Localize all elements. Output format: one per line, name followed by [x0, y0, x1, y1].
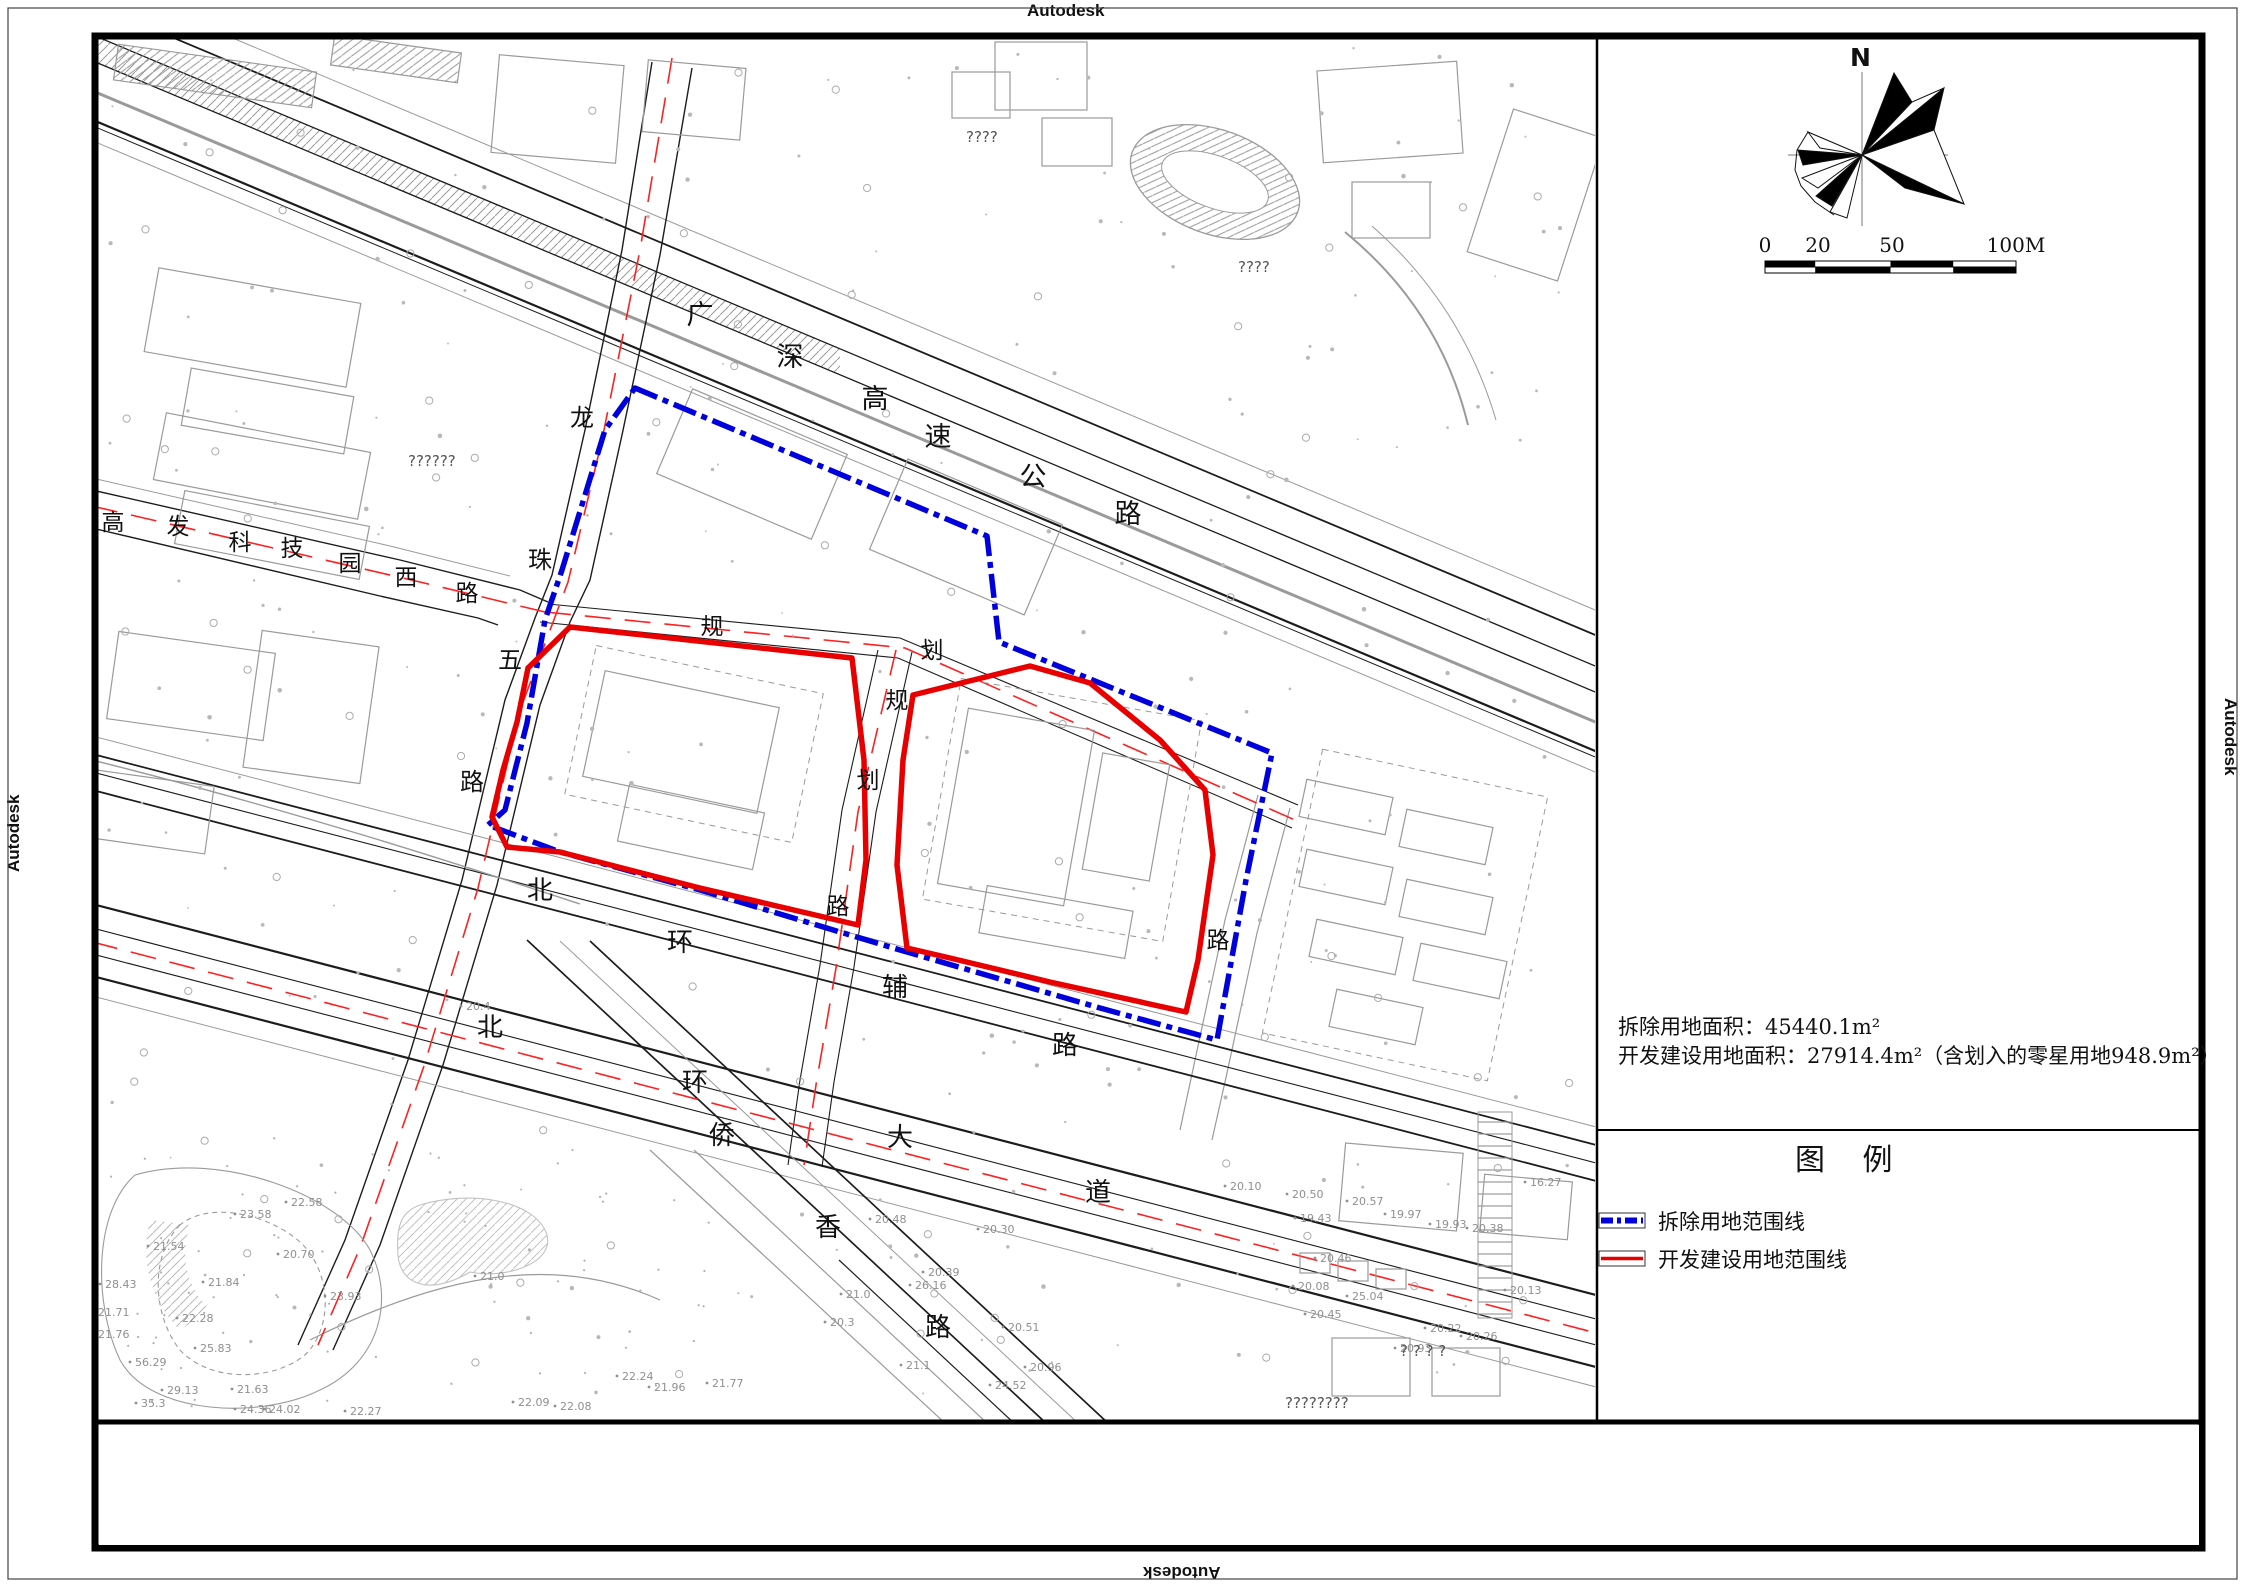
map-dot	[485, 1225, 487, 1227]
tree-icon	[680, 230, 687, 237]
map-dot	[388, 1169, 390, 1171]
map-dot	[253, 579, 255, 581]
spot-elevation-value: 26.16	[915, 1279, 947, 1292]
map-dot	[1494, 275, 1496, 277]
spot-elevation-value: 20.46	[1320, 1252, 1352, 1265]
map-dot	[890, 1256, 893, 1259]
map-dot	[1445, 671, 1449, 675]
map-dot	[292, 1305, 296, 1309]
map-dot	[183, 142, 187, 146]
map-dot	[273, 1137, 275, 1139]
scale-tick-0: 0	[1759, 233, 1772, 257]
tree-icon	[735, 69, 742, 76]
map-dot	[800, 1212, 804, 1216]
map-dot	[1146, 929, 1150, 933]
spot-elevation-dot	[234, 1213, 237, 1216]
placeholder-glyph-text: ????	[1238, 258, 1270, 276]
road-label-char: 路	[460, 768, 484, 796]
tree-icon	[123, 415, 130, 422]
spot-elevation-dot	[285, 1201, 288, 1204]
spot-elevation-dot	[231, 1388, 234, 1391]
map-dot	[1058, 1018, 1061, 1021]
map-dot	[1053, 371, 1057, 375]
map-dot	[309, 1314, 311, 1316]
map-dot	[1120, 562, 1124, 566]
map-dot	[925, 736, 928, 739]
map-dot	[515, 641, 517, 643]
tree-icon	[472, 1359, 479, 1366]
tree-icon	[1076, 914, 1083, 921]
tree-icon	[607, 1242, 614, 1249]
map-dot	[530, 1332, 532, 1334]
map-dot	[1524, 136, 1526, 138]
spot-elevation-value: 22.28	[182, 1312, 214, 1325]
tree-icon	[1566, 1079, 1573, 1086]
map-dot	[191, 1405, 193, 1407]
map-dot	[1411, 270, 1413, 272]
placeholder-glyph-text: ? ? ? ?	[1400, 1342, 1446, 1360]
map-dot	[136, 1313, 138, 1315]
tree-icon	[346, 712, 353, 719]
tree-icon	[921, 849, 928, 856]
tree-icon	[1263, 1354, 1270, 1361]
map-dot	[629, 781, 634, 786]
map-dot	[493, 1301, 495, 1303]
map-dot	[914, 1253, 918, 1257]
map-dot	[583, 1269, 585, 1271]
map-dot	[1241, 412, 1244, 415]
building-outline	[1329, 989, 1423, 1044]
building-outline	[1262, 749, 1547, 1080]
spot-elevation-value: 19.97	[1390, 1208, 1422, 1221]
map-dot	[270, 289, 274, 293]
map-dot	[1357, 438, 1359, 440]
map-dot	[198, 1250, 200, 1252]
spot-elevation-value: 20.22	[1430, 1322, 1462, 1335]
map-dot	[1148, 148, 1150, 150]
map-dot	[450, 1383, 452, 1385]
map-dot	[110, 1101, 113, 1104]
map-dot	[1234, 898, 1237, 901]
map-dot	[750, 1295, 753, 1298]
map-dot	[602, 218, 605, 221]
qiaoxiang-road-lines	[527, 940, 1110, 1425]
map-dot	[583, 1260, 585, 1262]
map-dot	[481, 712, 485, 716]
road-label-char: 西	[395, 565, 418, 591]
map-dot	[326, 1400, 328, 1402]
map-dot	[812, 419, 814, 421]
spot-elevation-value: 21.84	[208, 1276, 240, 1289]
map-dot	[708, 396, 712, 400]
map-dot	[891, 960, 894, 963]
map-dot	[1357, 1163, 1360, 1166]
map-dot	[891, 453, 894, 456]
map-dot	[594, 1391, 598, 1395]
road-label-char: 环	[682, 1068, 708, 1098]
map-dot	[972, 1131, 975, 1134]
road-label-char: 珠	[528, 546, 552, 574]
map-dot	[333, 905, 335, 907]
tree-icon	[1235, 323, 1242, 330]
spot-elevation-dot	[1466, 1227, 1469, 1230]
map-dot	[402, 301, 406, 305]
map-dot	[465, 1212, 467, 1214]
title-strip	[99, 1425, 2199, 1545]
map-dot	[371, 1153, 373, 1155]
road-label-char: 规	[701, 614, 724, 640]
road-label-char: 侨	[709, 1121, 735, 1151]
map-dot	[277, 688, 282, 693]
map-dot	[1323, 883, 1325, 885]
spot-elevation-dot	[194, 1347, 197, 1350]
map-dot	[243, 1274, 245, 1276]
spot-elevation-dot	[99, 1283, 102, 1286]
map-dot	[109, 442, 112, 445]
map-dot	[326, 1350, 328, 1352]
map-dot	[546, 425, 548, 427]
tree-icon	[832, 86, 839, 93]
tree-icon	[279, 207, 286, 214]
demolition-area-note: 拆除用地面积：45440.1m²	[1618, 1015, 1880, 1039]
map-dot	[157, 686, 161, 690]
tree-icon	[244, 666, 251, 673]
map-dot	[1558, 226, 1562, 230]
road-label-char: 路	[456, 581, 479, 607]
tree-icon	[471, 454, 478, 461]
map-dot	[628, 751, 630, 753]
map-dot	[1389, 814, 1392, 817]
building-outline	[952, 72, 1010, 118]
scale-tick-20: 20	[1805, 233, 1830, 257]
map-dot	[1221, 563, 1225, 567]
road-label-char: 速	[925, 422, 952, 453]
map-dot	[1242, 1004, 1244, 1006]
road-label-char: 发	[167, 514, 190, 540]
map-dot	[1246, 495, 1250, 499]
tree-icon	[244, 1250, 251, 1257]
road-label-char: 路	[1115, 499, 1142, 530]
map-dot	[464, 1221, 466, 1223]
map-dot	[657, 1269, 659, 1271]
map-dot	[438, 1157, 440, 1159]
map-dot	[1330, 347, 1334, 351]
tree-icon	[540, 1127, 547, 1134]
map-dot	[313, 995, 316, 998]
map-dot	[261, 604, 264, 607]
map-dot	[463, 1184, 465, 1186]
tree-icon	[201, 1137, 208, 1144]
map-dot	[1036, 609, 1038, 611]
spot-elevation-dot	[922, 1271, 925, 1274]
map-dot	[406, 666, 408, 668]
map-dot	[836, 1249, 838, 1251]
tree-icon	[210, 619, 217, 626]
spot-elevation-value: 20.10	[1230, 1180, 1262, 1193]
map-dot	[1401, 174, 1406, 179]
map-dot	[160, 1271, 162, 1273]
map-dot	[907, 76, 910, 79]
map-dot	[985, 213, 987, 215]
tree-icon	[689, 983, 696, 990]
spot-elevation-dot	[344, 1410, 347, 1413]
map-dot	[673, 1199, 675, 1201]
spot-elevation-dot	[1394, 1347, 1397, 1350]
map-dot	[1189, 677, 1193, 681]
spot-elevation-value: 21.54	[153, 1240, 185, 1253]
road-centerlines	[92, 58, 1600, 1345]
building-outline	[107, 631, 276, 740]
road-label-char: 龙	[570, 404, 594, 432]
map-area: 广深高速公路高发科技园西路龙珠五路规划规划路路北环辅路北环大道侨香路 20.48…	[88, 0, 1604, 1425]
scale-bar: 0 20 50 100M	[1759, 233, 2046, 273]
site-plan-canvas: 广深高速公路高发科技园西路龙珠五路规划规划路路北环辅路北环大道侨香路 20.48…	[0, 0, 2245, 1587]
map-dot	[1476, 405, 1480, 409]
map-dot	[1486, 618, 1490, 622]
road-label-char: 路	[1052, 1031, 1078, 1061]
map-dot	[289, 995, 291, 997]
scale-tick-50: 50	[1879, 233, 1904, 257]
building-outline	[1352, 182, 1430, 238]
map-dot	[242, 422, 245, 425]
map-dot	[512, 599, 516, 603]
road-label-char: 科	[229, 530, 252, 556]
map-dot	[1128, 1024, 1132, 1028]
building-outline	[979, 886, 1133, 959]
west-road-lines	[92, 478, 548, 625]
tree-icon	[1034, 293, 1041, 300]
map-dot	[334, 1192, 336, 1194]
map-dot	[1490, 371, 1493, 374]
spot-elevation-dot	[1286, 1193, 1289, 1196]
scale-tick-100: 100M	[1987, 233, 2046, 257]
map-dot	[1306, 356, 1310, 360]
spot-elevation-dot	[1424, 1327, 1427, 1330]
wind-rose-icon	[1788, 72, 1964, 226]
map-dot	[1153, 704, 1157, 708]
map-dot	[155, 1336, 157, 1338]
map-dot	[454, 174, 456, 176]
map-dot	[625, 1347, 627, 1349]
map-dot	[1228, 398, 1231, 401]
right-panel: N 0 20 50 100M 拆除用地面积：45440.1m² 开发建设用地面积…	[1597, 43, 2221, 1272]
tree-icon	[525, 281, 532, 288]
drawing-sheet: Autodesk Autodesk Autodesk Autodesk	[0, 0, 2245, 1587]
map-dot	[1273, 1243, 1275, 1245]
map-dot	[1132, 887, 1135, 890]
map-dot	[1210, 519, 1213, 522]
map-dot	[693, 1340, 695, 1342]
map-dot	[639, 1290, 641, 1292]
road-label-char: 道	[1085, 1178, 1111, 1208]
tree-icon	[1223, 1160, 1230, 1167]
map-dot	[665, 791, 668, 794]
spot-elevation-value: 24.36	[240, 1403, 272, 1416]
spot-elevation-value: 20.39	[928, 1266, 960, 1279]
spot-elevation-dot	[869, 1218, 872, 1221]
map-dot	[210, 79, 212, 81]
map-dot	[187, 315, 190, 318]
map-dot	[170, 1157, 172, 1159]
spot-elevation-dot	[1429, 1223, 1432, 1226]
map-dot	[367, 1270, 369, 1272]
spot-elevation-value: 20.96	[1030, 1361, 1062, 1374]
spot-elevation-dot	[648, 1386, 651, 1389]
tree-icon	[206, 149, 213, 156]
spot-elevation-value: 20.57	[1352, 1195, 1384, 1208]
tree-icon	[335, 1216, 342, 1223]
map-dot	[982, 1051, 985, 1054]
map-dot	[446, 998, 449, 1001]
map-dot	[797, 155, 800, 158]
map-dot	[554, 833, 558, 837]
spot-elevation-value: 24.52	[995, 1379, 1027, 1392]
legend: 图 例 拆除用地范围线 开发建设用地范围线	[1597, 1130, 2202, 1272]
map-dot	[1465, 1350, 1469, 1354]
map-dot	[177, 580, 180, 583]
north-ring-aux-road-lines	[92, 736, 1600, 1182]
spot-elevation-dot	[161, 1389, 164, 1392]
map-dot	[1519, 439, 1522, 442]
map-dot	[1453, 1363, 1456, 1366]
map-dot	[1558, 291, 1560, 293]
map-dot	[965, 750, 969, 754]
road-name-labels: 广深高速公路高发科技园西路龙珠五路规划规划路路北环辅路北环大道侨香路	[102, 300, 1230, 1343]
map-dot	[1275, 1288, 1278, 1291]
map-dot	[1446, 426, 1449, 429]
map-dot	[605, 1193, 607, 1195]
spot-elevation-dot	[977, 1228, 980, 1231]
spot-elevation-dot	[706, 1382, 709, 1385]
spot-elevation-dot	[176, 1317, 179, 1320]
map-dot	[1465, 1305, 1467, 1307]
tree-icon	[161, 446, 168, 453]
map-dot	[1120, 221, 1122, 223]
tree-icon	[261, 1196, 268, 1203]
spot-elevation-dot	[1346, 1295, 1349, 1298]
spot-elevation-dot	[263, 1408, 266, 1411]
spot-elevation-value: 19.93	[1435, 1218, 1467, 1231]
spot-elevation-dot	[129, 1361, 132, 1364]
map-dot	[447, 342, 449, 344]
map-dot	[703, 1305, 705, 1307]
tree-icon	[1326, 244, 1333, 251]
tree-icon	[589, 107, 596, 114]
map-dot	[955, 66, 959, 70]
road-label-char: 路	[827, 894, 850, 920]
spot-elevation-value: 21.77	[712, 1377, 744, 1390]
map-dot	[1012, 1040, 1015, 1043]
map-dot	[1081, 630, 1085, 634]
tree-icon	[1261, 1033, 1268, 1040]
tree-icon	[1302, 434, 1309, 441]
building-outline	[565, 646, 824, 843]
map-dot	[647, 432, 651, 436]
map-dot	[213, 1296, 215, 1298]
longzhu-road-lines	[298, 62, 692, 1350]
map-dot	[1542, 230, 1546, 234]
map-dot	[321, 1250, 323, 1252]
map-dot	[1056, 78, 1058, 80]
map-dot	[1137, 1067, 1141, 1071]
map-dot	[296, 1185, 298, 1187]
tree-icon	[212, 448, 219, 455]
map-dot	[1384, 901, 1387, 904]
spot-elevation-dot	[1294, 1217, 1297, 1220]
tree-icon	[864, 184, 871, 191]
spot-elevation-value: 20.13	[1510, 1284, 1542, 1297]
spot-elevation-value: 35.3	[141, 1397, 166, 1410]
map-dot	[463, 289, 466, 292]
map-dot	[1224, 1095, 1228, 1099]
map-dot	[647, 215, 650, 218]
map-dot	[1510, 83, 1514, 87]
map-dot	[927, 822, 931, 826]
map-dot	[1325, 949, 1328, 952]
map-dot	[206, 739, 209, 742]
map-dot	[690, 386, 692, 388]
spot-elevation-dot	[840, 1293, 843, 1296]
map-dot	[250, 286, 254, 290]
map-dot	[108, 241, 112, 245]
map-dot	[1430, 181, 1432, 183]
spot-elevation-value: 21.1	[906, 1359, 931, 1372]
spot-elevation-value: 25.83	[200, 1342, 232, 1355]
tree-icon	[676, 1371, 683, 1378]
map-dot	[1457, 119, 1459, 121]
map-dot	[981, 1339, 983, 1341]
map-dot	[571, 1149, 573, 1151]
map-dot	[127, 1345, 129, 1347]
map-dot	[703, 1270, 705, 1272]
building-outline	[88, 770, 214, 854]
map-dot	[207, 715, 212, 720]
spot-elevation-value: 20.08	[1298, 1280, 1330, 1293]
spot-elevation-dot	[909, 1284, 912, 1287]
map-dot	[204, 1274, 207, 1277]
map-dot	[110, 1176, 112, 1178]
map-dot	[520, 1189, 522, 1191]
map-dot	[610, 532, 613, 535]
spot-elevation-dot	[234, 1408, 237, 1411]
tree-icon	[948, 588, 955, 595]
building-outline	[181, 368, 354, 454]
tree-icon	[426, 397, 433, 404]
spot-elevation-value: 20.50	[1292, 1188, 1324, 1201]
spot-elevation-dot	[474, 1275, 477, 1278]
spot-elevation-dot	[1224, 1185, 1227, 1188]
tree-icon	[433, 474, 440, 481]
map-dot	[990, 1033, 995, 1038]
map-dot	[1284, 478, 1289, 483]
building-outline	[1299, 779, 1393, 834]
map-dot	[312, 631, 314, 633]
building-outline	[583, 671, 780, 814]
map-dot	[375, 257, 380, 262]
map-dot	[1565, 1164, 1568, 1167]
map-dot	[1258, 918, 1262, 922]
road-label-char: 园	[339, 551, 362, 577]
spot-elevation-value: 23.93	[330, 1290, 362, 1303]
tree-icon	[997, 1336, 1004, 1343]
building-outline	[331, 35, 462, 83]
map-dot	[711, 468, 714, 471]
tree-icon	[131, 1078, 138, 1085]
map-dot	[1236, 1273, 1238, 1275]
map-dot	[590, 727, 594, 731]
map-dot	[141, 802, 144, 805]
building-outline	[1309, 919, 1403, 974]
